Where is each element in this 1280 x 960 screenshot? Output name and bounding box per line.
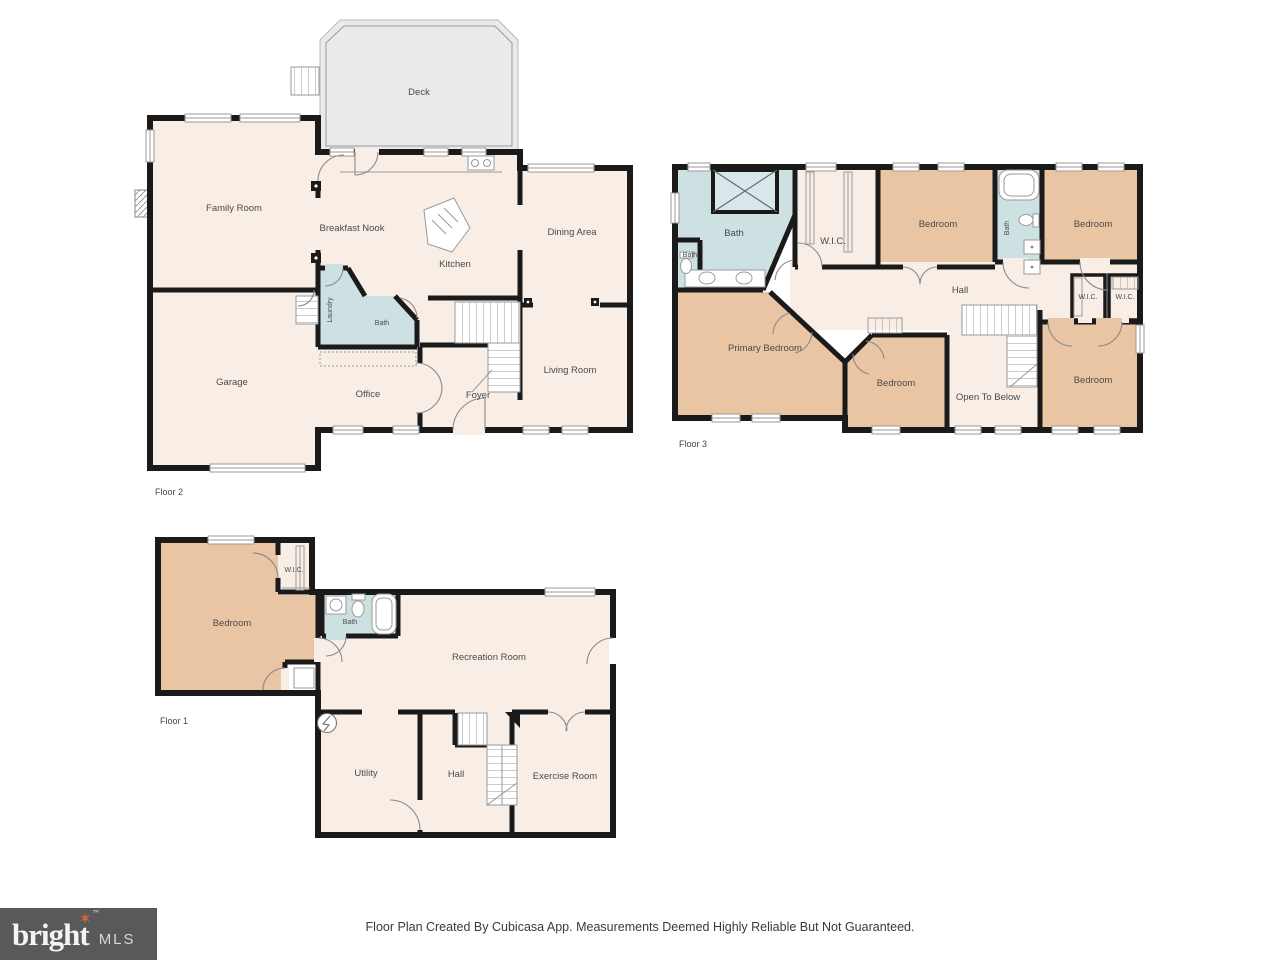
room-label-hall-f3: Hall <box>952 285 968 296</box>
bedroom-top-middle-area <box>878 167 995 267</box>
room-label-deck: Deck <box>408 87 430 98</box>
room-label-bath-wc: Bath <box>683 252 698 259</box>
room-label-laundry: Laundry <box>327 297 334 323</box>
room-label-foyer: Foyer <box>466 390 490 401</box>
floor-plan-drawing: Deck Family Room Breakfast Nook Kitchen … <box>0 0 1280 960</box>
room-label-open-to-below: Open To Below <box>956 392 1020 403</box>
electrical-panel-icon <box>318 714 337 733</box>
room-label-utility: Utility <box>354 768 377 779</box>
room-label-bedroom-top-right: Bedroom <box>1074 219 1113 230</box>
room-label-exercise-room: Exercise Room <box>533 771 597 782</box>
deck-area <box>320 20 518 152</box>
duct-box <box>294 668 314 688</box>
room-label-garage: Garage <box>216 377 248 388</box>
disclaimer-text: Floor Plan Created By Cubicasa App. Meas… <box>0 920 1280 934</box>
room-label-bedroom-bottom-middle: Bedroom <box>877 378 916 389</box>
room-label-bath-f1: Bath <box>343 619 358 626</box>
bath-main-vanity <box>685 270 765 287</box>
room-label-hall-f1: Hall <box>448 769 464 780</box>
room-label-kitchen: Kitchen <box>439 259 471 270</box>
wic-top-area <box>795 167 878 267</box>
room-label-family-room: Family Room <box>206 203 262 214</box>
room-label-dining-area: Dining Area <box>547 227 597 238</box>
floor-3-label: Floor 3 <box>679 439 707 449</box>
room-label-bedroom-top-middle: Bedroom <box>919 219 958 230</box>
dining-living-area <box>520 168 630 430</box>
room-label-primary-bedroom: Primary Bedroom <box>728 343 802 354</box>
room-label-wic-top: W.I.C. <box>820 236 846 247</box>
garage-steps <box>296 296 318 324</box>
room-label-bedroom-bottom-right: Bedroom <box>1074 375 1113 386</box>
room-label-living-room: Living Room <box>544 365 597 376</box>
floor-2-label: Floor 2 <box>155 487 183 497</box>
bedroom-top-right-area <box>1042 167 1140 262</box>
room-label-bedroom-f1: Bedroom <box>213 618 252 629</box>
floor-3-plan: Bath Bath W.I.C. Bedroom Bath Bedroom Ha… <box>671 163 1144 449</box>
room-label-recreation-room: Recreation Room <box>452 652 526 663</box>
room-label-bath-middle: Bath <box>1004 221 1011 236</box>
floor-plan-sheet: Deck Family Room Breakfast Nook Kitchen … <box>0 0 1280 960</box>
room-label-bath-f2: Bath <box>375 320 390 327</box>
room-label-office: Office <box>356 389 381 400</box>
room-label-bath-main: Bath <box>724 228 744 239</box>
bright-mls-logo: bright✶™ MLS <box>0 908 157 960</box>
floor-1-plan: Bedroom W.I.C. Bath Recreation Room Util… <box>158 536 617 835</box>
shower <box>713 170 777 212</box>
room-label-wic-f1: W.I.C. <box>284 567 303 574</box>
floor-1-label: Floor 1 <box>160 716 188 726</box>
room-label-wic2: W.I.C. <box>1115 294 1134 301</box>
floor-2-plan: Deck Family Room Breakfast Nook Kitchen … <box>135 20 630 497</box>
room-label-wic1: W.I.C. <box>1078 294 1097 301</box>
room-label-breakfast-nook: Breakfast Nook <box>320 223 385 234</box>
logo-tm-mark: ™ <box>93 910 99 916</box>
